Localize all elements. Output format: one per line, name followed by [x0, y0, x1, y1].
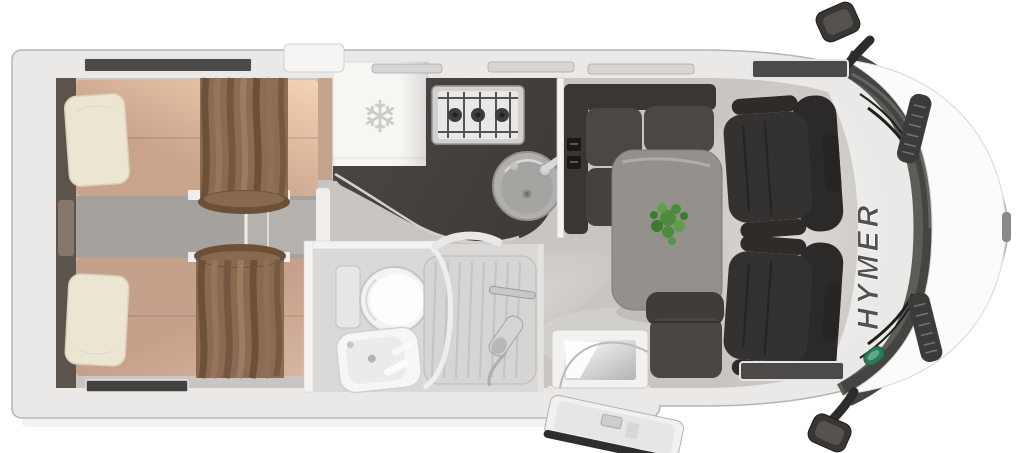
partition-wall — [557, 78, 564, 238]
refrigerator: ❄ — [333, 62, 428, 181]
roof-vent-cap — [284, 44, 344, 72]
gas-hob — [432, 86, 524, 144]
washbasin — [335, 326, 423, 394]
window-bedroom-top — [84, 58, 252, 72]
snowflake-icon: ❄ — [362, 92, 399, 143]
kitchen-sink — [493, 152, 562, 220]
shower — [424, 236, 536, 388]
side-mirror-top — [813, 0, 870, 64]
floor-plan-image: ❄ — [0, 0, 1023, 453]
toilet — [336, 266, 428, 333]
privacy-curtain-bottom — [194, 244, 286, 378]
window-cab-top — [752, 60, 848, 78]
toilet-lid — [370, 274, 424, 326]
window-bedroom-bottom — [86, 380, 188, 392]
pillow-bottom — [65, 273, 130, 366]
rear-bedroom — [56, 78, 330, 388]
cab-seat-passenger — [721, 92, 844, 240]
lounge-bench-cushion-top — [644, 106, 714, 152]
awning-rail-2 — [488, 62, 574, 72]
motorhome-floorplan-svg: ❄ — [0, 0, 1023, 453]
pillow-top — [64, 93, 130, 187]
bathroom-wall-left — [304, 241, 313, 392]
privacy-curtain-top — [198, 78, 290, 214]
bathroom — [304, 236, 544, 394]
window-cab-bottom — [740, 362, 844, 380]
headboard-cushion — [58, 200, 74, 256]
front-emblem — [1002, 212, 1011, 242]
toilet-tank — [336, 266, 360, 328]
cab-seat-driver — [721, 234, 844, 382]
bathroom-wall-top — [304, 241, 440, 249]
bathroom-wall-right — [538, 244, 544, 392]
awning-rail-1 — [372, 64, 442, 73]
side-seat — [646, 292, 724, 378]
wardrobe-divider — [318, 78, 332, 180]
side-mirror-bottom — [805, 392, 854, 453]
hymer-logo-text: HYMER — [852, 202, 885, 330]
soap-dispenser — [510, 162, 518, 170]
awning-rail-3 — [588, 64, 694, 74]
